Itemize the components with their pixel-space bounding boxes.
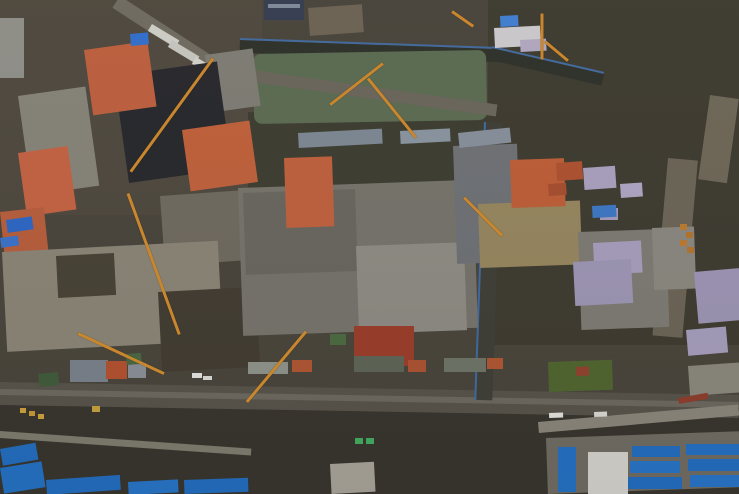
crane-boom xyxy=(541,14,544,60)
aerial-construction-site-photo xyxy=(0,0,739,494)
